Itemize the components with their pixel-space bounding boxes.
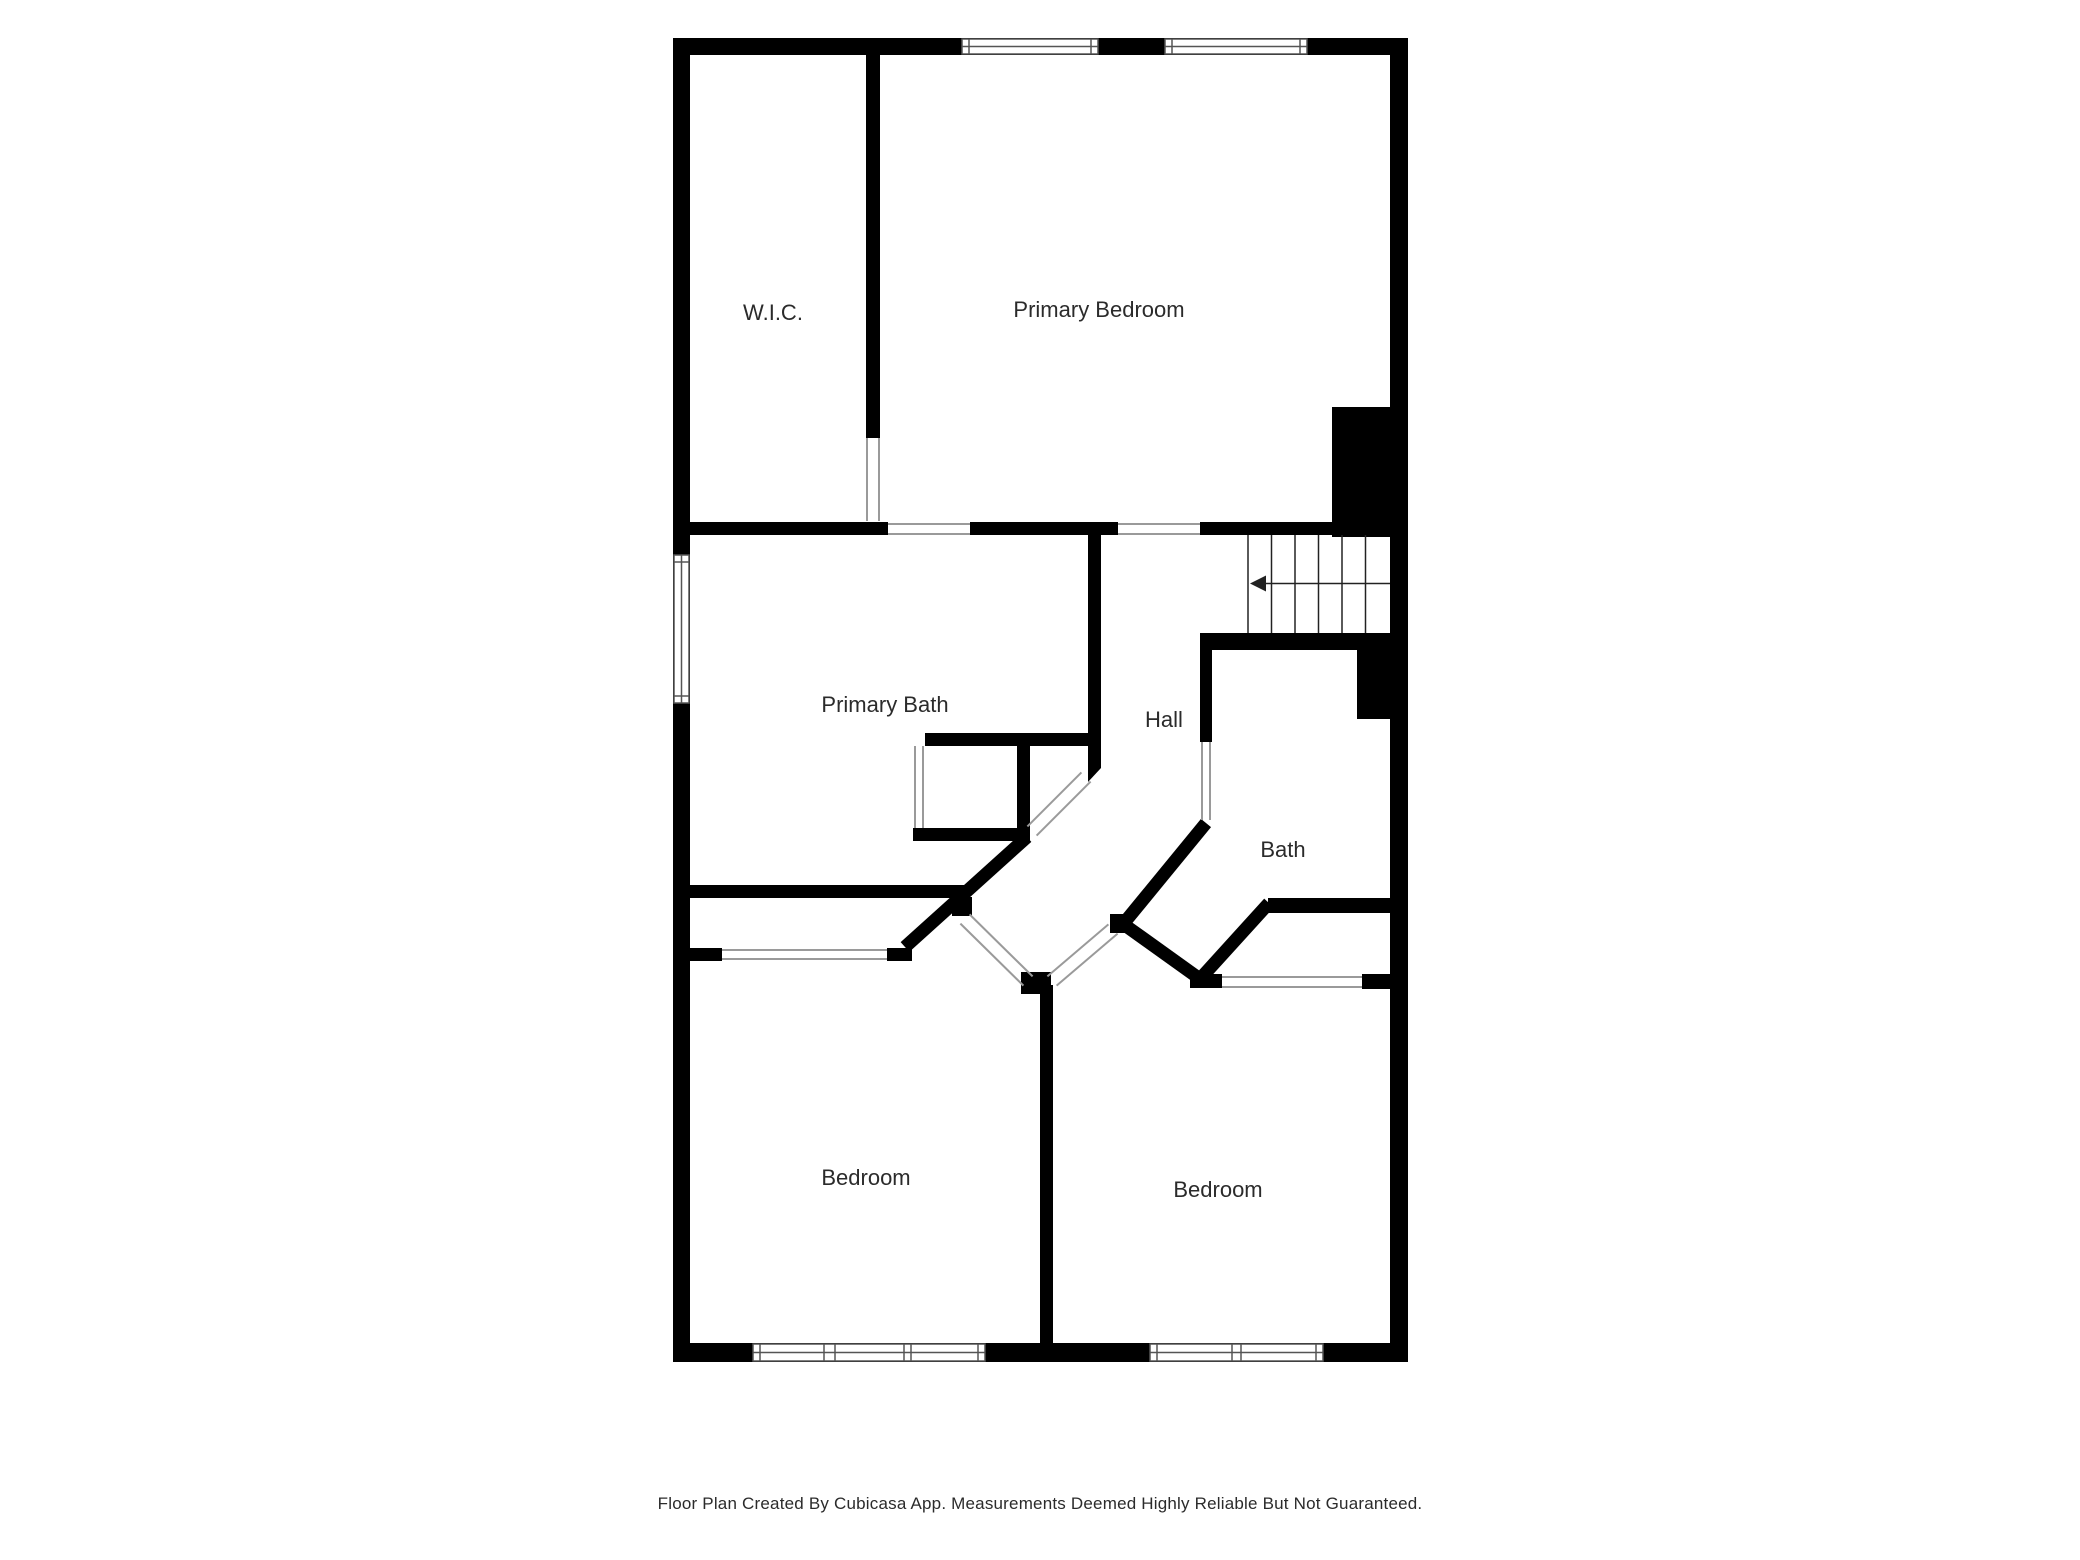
wall-wic-divider <box>866 55 880 438</box>
window-top-right <box>1165 39 1307 54</box>
opening-bedroom-left-door <box>970 914 1033 976</box>
window-bottom-right <box>1150 1344 1323 1361</box>
wall-wc-right <box>1017 746 1030 828</box>
floorplan-canvas: W.I.C. Primary Bedroom Primary Bath Hall… <box>0 0 2080 1560</box>
window-top-left <box>962 39 1098 54</box>
stairs <box>1248 535 1390 633</box>
wall-diagonal-chevron-right <box>1200 903 1269 979</box>
wall-wc-bottom <box>913 828 1030 841</box>
interior-walls <box>690 55 1390 1343</box>
room-label-hall: Hall <box>1145 707 1183 732</box>
wall-bedroom-divider <box>1040 985 1053 1343</box>
wall-primary-bath-bottom <box>690 885 968 898</box>
wall-below-stairs <box>1200 633 1390 650</box>
opening-bedroom-left-door <box>960 924 1023 986</box>
wall-wc-top <box>925 733 1090 746</box>
wall-bath-left <box>1200 633 1212 742</box>
wall-notch-bedroom-corner <box>1332 407 1390 537</box>
window-left-wall <box>674 555 689 703</box>
wall-closet-stub-left <box>690 948 722 961</box>
wall-opening-right-stub <box>1362 974 1390 989</box>
room-label-bedroom-left: Bedroom <box>821 1165 910 1190</box>
floorplan-svg: W.I.C. Primary Bedroom Primary Bath Hall… <box>0 0 2080 1560</box>
wall-diagonal-bathroom-left <box>1124 823 1206 923</box>
wall-notch-bath-corner <box>1357 650 1390 719</box>
room-label-bedroom-right: Bedroom <box>1173 1177 1262 1202</box>
windows <box>674 39 1323 1361</box>
room-label-primary-bedroom: Primary Bedroom <box>1013 297 1184 322</box>
room-label-bath: Bath <box>1260 837 1305 862</box>
wall-suite-top-left <box>690 522 888 535</box>
room-label-primary-bath: Primary Bath <box>821 692 948 717</box>
footer-disclaimer: Floor Plan Created By Cubicasa App. Meas… <box>0 1494 2080 1514</box>
window-bottom-left <box>753 1344 985 1361</box>
wall-diagonal-chevron-left <box>1126 926 1200 979</box>
wall-hall-left-tip <box>1088 768 1101 782</box>
stair-direction-arrow-icon <box>1250 576 1266 592</box>
wall-bath-bottom <box>1268 898 1390 913</box>
wall-suite-top-mid <box>970 522 1118 535</box>
room-label-wic: W.I.C. <box>743 300 803 325</box>
